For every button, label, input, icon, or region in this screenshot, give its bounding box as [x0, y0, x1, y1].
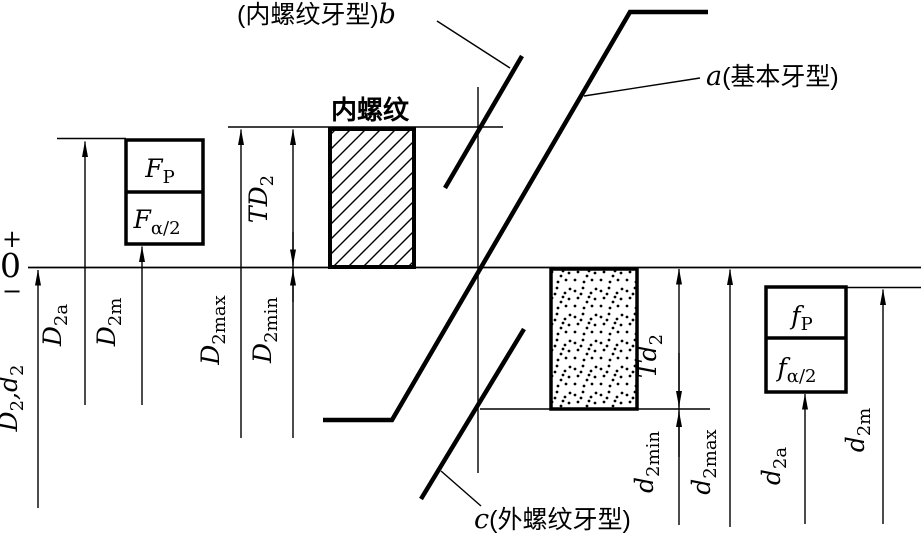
deviation-box-labels: FP Fα/2 fP fα/2	[132, 154, 816, 387]
external-profile-line-c	[421, 329, 524, 499]
external-thread-tolerance-zone	[551, 269, 637, 409]
dim-label-d2min: d2min	[630, 431, 664, 493]
leader-internal-profile	[437, 21, 510, 68]
leader-external-profile	[441, 471, 481, 506]
thread-tolerance-diagram: + 0 − (内螺纹牙型)b a(基本牙型) c(外螺纹牙型) 内螺纹 FP F…	[0, 0, 921, 536]
dim-label-D2m: D2m	[92, 298, 126, 348]
leader-basic-profile	[584, 78, 700, 96]
deviation-boxes	[126, 140, 846, 392]
external-profile-callout: c(外螺纹牙型)	[474, 504, 631, 535]
dim-label-d2a: d2a	[757, 447, 791, 485]
dim-label-D2d2: D2,d2	[0, 365, 28, 433]
dim-label-D2a: D2a	[38, 304, 72, 347]
dim-label-TD2: TD2	[244, 175, 278, 223]
internal-thread-zone-label: 内螺纹	[331, 95, 410, 125]
dim-label-d2max: d2max	[687, 429, 721, 494]
dim-label-d2m: d2m	[841, 408, 875, 453]
basic-profile-callout: a(基本牙型)	[706, 61, 839, 92]
axis-signs: + 0 −	[0, 225, 22, 305]
dim-label-D2min: D2min	[248, 297, 282, 364]
internal-profile-callout: (内螺纹牙型)b	[237, 0, 396, 30]
dim-label-D2max: D2max	[196, 295, 230, 365]
diagram-canvas: + 0 − (内螺纹牙型)b a(基本牙型) c(外螺纹牙型) 内螺纹 FP F…	[0, 0, 921, 536]
internal-thread-tolerance-zone	[330, 129, 414, 267]
tolerance-zones	[330, 129, 637, 409]
axis-minus-sign: −	[2, 277, 22, 305]
internal-profile-line-b	[445, 56, 522, 188]
